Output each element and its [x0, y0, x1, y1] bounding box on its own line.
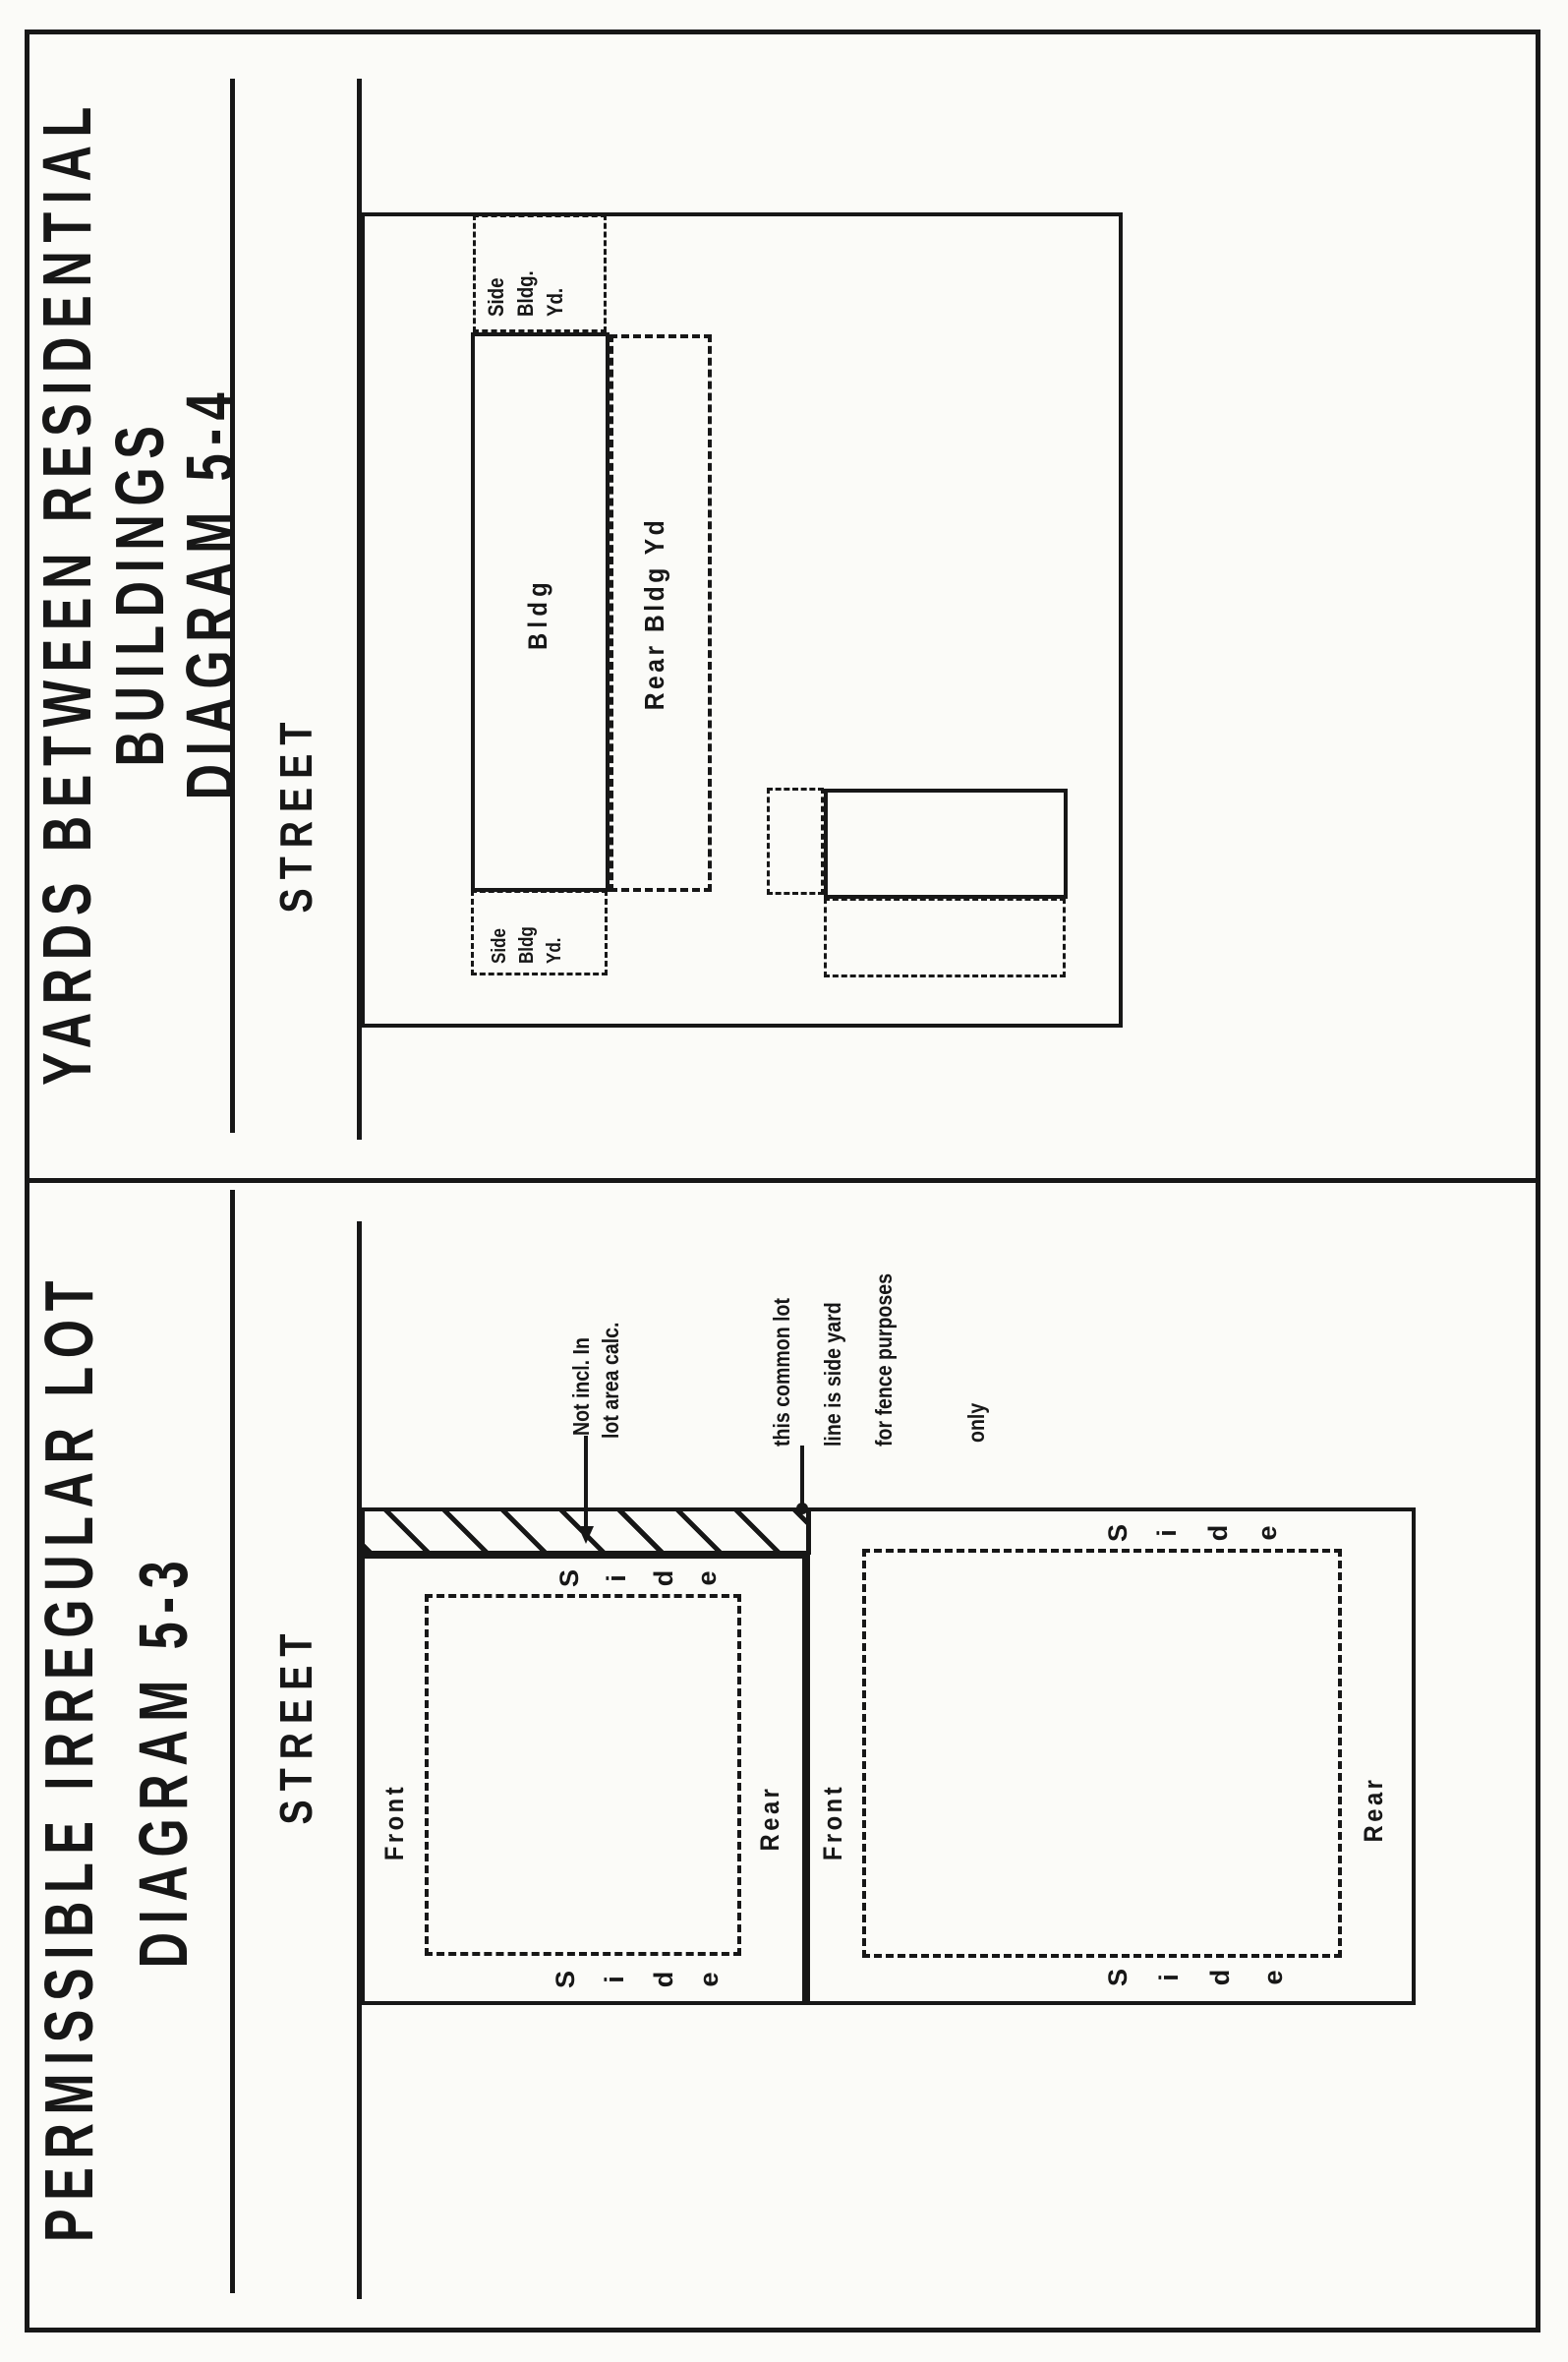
hatch-note-line: lot area calc. [598, 1323, 624, 1439]
diagram-5-3-title: PERMISSIBLE IRREGULAR LOT [29, 1272, 108, 2242]
common-lot-note-line: this common lot [769, 1298, 795, 1447]
hatch-note-leader-line [584, 1436, 588, 1526]
common-lot-note-line: for fence purposes [871, 1273, 898, 1447]
side-yard-letter: e [1252, 1525, 1283, 1540]
side-yard-text-line: Bldg. [511, 270, 541, 317]
side-yard-letter: e [1258, 1970, 1289, 1984]
side-yard-text-line: Yd. [541, 926, 568, 964]
street-label: STREET [269, 714, 322, 914]
side-yard-letter: S [554, 1569, 585, 1587]
rotated-canvas: PERMISSIBLE IRREGULAR LOT DIAGRAM 5-3 ST… [0, 0, 1568, 2362]
common-lot-note-line: line is side yard [820, 1302, 846, 1447]
side-building-yard-right-label: Side Bldg. Yd. [482, 270, 570, 317]
side-yard-letter: d [1203, 1525, 1234, 1542]
side-yard-text-line: Bldg [513, 926, 541, 964]
side-yard-letter: d [1205, 1970, 1236, 1986]
common-lot-leader-line [800, 1446, 804, 1505]
lot-1-building-envelope [425, 1594, 741, 1956]
side-yard-letter: i [1154, 1974, 1185, 1981]
front-yard-label: Front [379, 1784, 410, 1860]
side-yard-letter: S [1103, 1524, 1133, 1542]
hatch-note-line: Not incl. In [568, 1337, 595, 1436]
page-sheet: PERMISSIBLE IRREGULAR LOT DIAGRAM 5-3 ST… [0, 0, 1568, 2362]
panel-divider [25, 1178, 1540, 1183]
side-yard-letter: i [1152, 1529, 1183, 1537]
accessory-building [824, 789, 1068, 899]
leader-dot-icon [796, 1503, 808, 1514]
side-yard-letter: S [1103, 1969, 1133, 1986]
street-upper-line [230, 79, 235, 1133]
side-yard-letter: e [694, 1972, 725, 1986]
street-label: STREET [269, 1625, 322, 1825]
side-building-yard-left-label: Side Bldg Yd. [486, 926, 568, 964]
accessory-rear-yard [824, 898, 1066, 977]
lot-2-building-envelope [862, 1549, 1342, 1958]
diagram-5-4-title: YARDS BETWEEN RESIDENTIAL [28, 98, 106, 1086]
front-yard-label: Front [818, 1784, 848, 1860]
common-lot-note-line: only [963, 1403, 990, 1443]
side-yard-letter: i [600, 1976, 630, 1983]
side-yard-text-line: Side [482, 270, 511, 317]
side-yard-letter: d [649, 1570, 679, 1587]
arrowhead-icon [578, 1526, 594, 1544]
diagram-5-4-subtitle: DIAGRAM 5-4 [171, 384, 250, 800]
side-yard-letter: e [692, 1570, 723, 1585]
side-yard-text-line: Yd. [541, 270, 570, 317]
street-upper-line [230, 1190, 235, 2293]
accessory-side-yard [767, 788, 824, 895]
diagram-5-3-subtitle: DIAGRAM 5-3 [124, 1553, 203, 1969]
side-yard-letter: d [649, 1972, 679, 1988]
side-yard-letter: S [551, 1971, 581, 1988]
diagram-5-4-title-line2: BUILDINGS [100, 418, 179, 767]
side-yard-text-line: Side [486, 926, 513, 964]
building-label: Bldg [523, 577, 553, 650]
rear-yard-label: Rear [1359, 1777, 1389, 1843]
rear-building-yard-label: Rear Bldg Yd [639, 517, 670, 711]
rear-yard-label: Rear [755, 1786, 785, 1852]
side-yard-letter: i [602, 1574, 632, 1582]
